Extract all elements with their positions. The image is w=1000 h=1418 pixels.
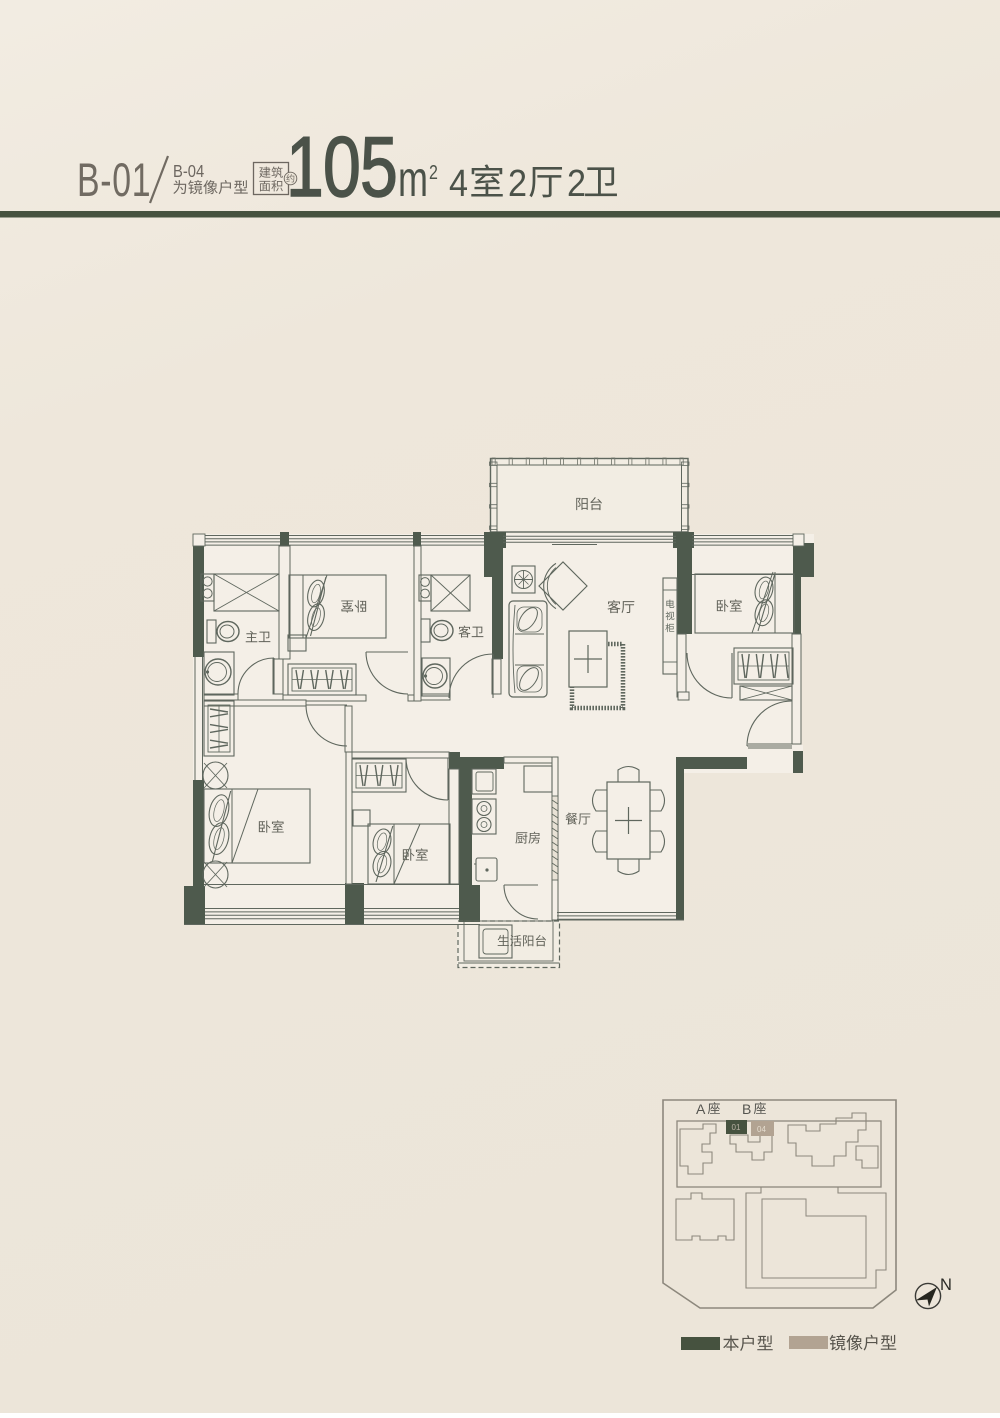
svg-text:4: 4 [449,161,468,204]
svg-text:B-01: B-01 [77,154,151,207]
svg-text:N: N [940,1276,952,1294]
svg-text:2: 2 [567,161,586,204]
svg-text:A: A [696,1101,706,1117]
svg-text:2: 2 [429,161,438,183]
svg-text:m: m [398,152,428,207]
svg-text:04: 04 [757,1125,766,1134]
svg-text:2: 2 [508,161,527,204]
svg-text:01: 01 [732,1123,741,1132]
svg-text:105: 105 [286,120,397,215]
svg-text:B: B [742,1101,751,1117]
svg-text:B-04: B-04 [173,162,204,182]
